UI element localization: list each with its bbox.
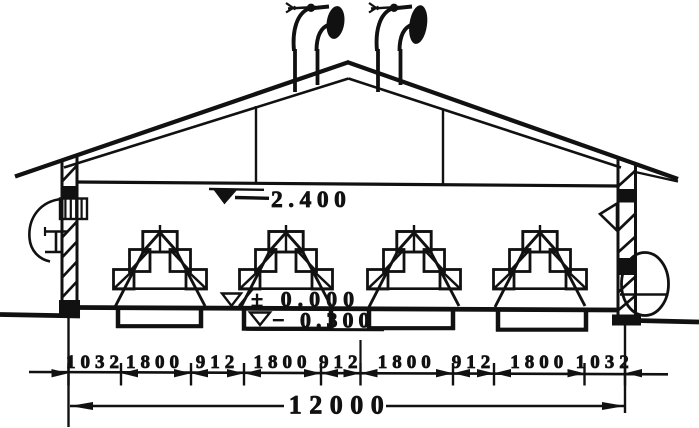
svg-text:1800: 1800 <box>378 352 436 373</box>
svg-text:12000: 12000 <box>289 391 392 420</box>
svg-text:1800: 1800 <box>254 352 312 373</box>
svg-text:1032: 1032 <box>66 352 124 373</box>
svg-text:1800: 1800 <box>510 352 568 373</box>
svg-text:912: 912 <box>452 352 496 373</box>
svg-text:2.400: 2.400 <box>271 187 351 213</box>
svg-text:912: 912 <box>319 352 363 373</box>
svg-text:1800: 1800 <box>126 352 184 373</box>
svg-text:912: 912 <box>196 352 240 373</box>
